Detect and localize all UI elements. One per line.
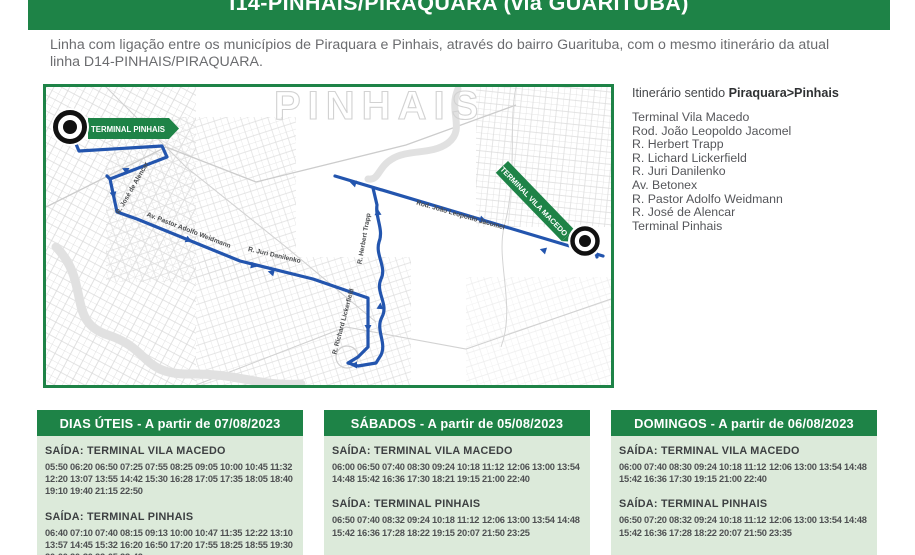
departure-time: 22:50: [120, 485, 145, 497]
departure-time: 14:45: [70, 539, 95, 551]
route-description: Linha com ligação entre os municípios de…: [50, 37, 862, 71]
itinerary-stop: R. José de Alencar: [632, 206, 892, 220]
departure-time: 14:48: [844, 514, 869, 526]
itinerary-title: Itinerário sentido Piraquara>Pinhais: [632, 86, 892, 100]
departure-time: 12:06: [482, 514, 507, 526]
street-label-herbert-trapp: R. Herbert Trapp: [357, 213, 373, 265]
departure-time: 13:54: [557, 461, 582, 473]
departure-time: 15:42: [619, 527, 644, 539]
departure-terminal-label: SAÍDA: TERMINAL PINHAIS: [45, 511, 295, 523]
departure-time: 18:22: [694, 527, 719, 539]
departure-time: 13:10: [270, 527, 295, 539]
terminal-pinhais-marker: [51, 108, 89, 146]
departure-time: 21:00: [482, 473, 507, 485]
departure-time: 16:50: [145, 539, 170, 551]
departure-time: 13:55: [95, 473, 120, 485]
departure-terminal-label: SAÍDA: TERMINAL VILA MACEDO: [332, 445, 582, 457]
schedule-header: DOMINGOS - A partir de 06/08/2023: [611, 410, 877, 436]
departure-time: 17:55: [195, 539, 220, 551]
departure-time: 14:48: [557, 514, 582, 526]
departure-time: 13:00: [532, 461, 557, 473]
terminal-vila-macedo-marker: [568, 224, 602, 258]
departure-time: 06:00: [332, 461, 357, 473]
departure-times: 06:5007:4008:3209:2410:1811:1212:0613:00…: [332, 514, 582, 538]
itinerary-panel: Itinerário sentido Piraquara>Pinhais Ter…: [632, 86, 892, 233]
itinerary-stop: Rod. João Leopoldo Jacomel: [632, 125, 892, 139]
departure-time: 16:28: [170, 473, 195, 485]
departure-time: 12:06: [769, 514, 794, 526]
departure-time: 08:32: [382, 514, 407, 526]
departure-time: 10:00: [170, 527, 195, 539]
departure-times: 06:4007:1007:4008:1509:1310:0010:4711:35…: [45, 527, 295, 555]
departure-times: 06:0006:5007:4008:3009:2410:1811:1212:06…: [332, 461, 582, 485]
departure-time: 17:28: [382, 527, 407, 539]
departure-time: 07:40: [357, 514, 382, 526]
terminal-pinhais-label: TERMINAL PINHAIS: [91, 125, 165, 134]
departure-time: 13:54: [819, 514, 844, 526]
departure-time: 07:20: [644, 514, 669, 526]
departure-time: 10:47: [195, 527, 220, 539]
departure-time: 14:48: [332, 473, 357, 485]
departure-time: 08:25: [170, 461, 195, 473]
departure-time: 15:42: [357, 473, 382, 485]
departure-time: 14:42: [120, 473, 145, 485]
departure-time: 12:06: [769, 461, 794, 473]
schedule-header: SÁBADOS - A partir de 05/08/2023: [324, 410, 590, 436]
map-watermark: PINHAIS: [274, 87, 485, 128]
departure-time: 11:12: [482, 461, 507, 473]
schedule-body: SAÍDA: TERMINAL VILA MACEDO06:0007:4008:…: [611, 436, 877, 555]
route-map: PINHAIS: [43, 84, 614, 388]
departure-time: 13:07: [70, 473, 95, 485]
departure-time: 09:24: [694, 514, 719, 526]
itinerary-stop: R. Herbert Trapp: [632, 138, 892, 152]
departure-time: 16:36: [644, 473, 669, 485]
departure-time: 20:30: [70, 551, 95, 555]
departure-time: 07:10: [70, 527, 95, 539]
departure-time: 19:10: [45, 485, 70, 497]
departure-time: 06:00: [619, 461, 644, 473]
departure-time: 12:20: [45, 473, 70, 485]
itinerary-stop-list: Terminal Vila MacedoRod. João Leopoldo J…: [632, 111, 892, 233]
departure-time: 19:15: [432, 527, 457, 539]
itinerary-stop: Terminal Pinhais: [632, 220, 892, 234]
departure-time: 10:18: [719, 514, 744, 526]
itinerary-stop: R. Lichard Lickerfield: [632, 152, 892, 166]
departure-time: 18:40: [270, 473, 295, 485]
departure-time: 19:15: [457, 473, 482, 485]
departure-time: 15:42: [619, 473, 644, 485]
itinerary-stop: Terminal Vila Macedo: [632, 111, 892, 125]
departure-time: 13:00: [794, 461, 819, 473]
schedule-table: DIAS ÚTEIS - A partir de 07/08/2023 SAÍD…: [37, 410, 303, 555]
departure-time: 13:00: [794, 514, 819, 526]
departure-time: 23:42: [120, 551, 145, 555]
departure-time: 10:18: [719, 461, 744, 473]
departure-time: 14:48: [844, 461, 869, 473]
departure-time: 19:30: [270, 539, 295, 551]
departure-time: 19:15: [694, 473, 719, 485]
departure-time: 23:25: [507, 527, 532, 539]
departure-time: 11:12: [744, 461, 769, 473]
departure-time: 13:54: [532, 514, 557, 526]
departure-time: 21:50: [482, 527, 507, 539]
departure-time: 11:35: [220, 527, 245, 539]
departure-time: 11:32: [270, 461, 295, 473]
departure-time: 12:06: [507, 461, 532, 473]
departure-time: 06:20: [70, 461, 95, 473]
departure-time: 13:00: [507, 514, 532, 526]
departure-terminal-label: SAÍDA: TERMINAL PINHAIS: [619, 498, 869, 510]
departure-time: 17:20: [170, 539, 195, 551]
itinerary-stop: Av. Betonex: [632, 179, 892, 193]
departure-time: 13:54: [819, 461, 844, 473]
itinerary-stop: R. Pastor Adolfo Weidmann: [632, 193, 892, 207]
departure-time: 18:05: [245, 473, 270, 485]
itinerary-title-regular: Itinerário sentido: [632, 86, 729, 100]
departure-time: 08:30: [669, 461, 694, 473]
departure-time: 18:21: [432, 473, 457, 485]
departure-time: 16:36: [357, 527, 382, 539]
departure-times: 06:0007:4008:3009:2410:1811:1212:0613:00…: [619, 461, 869, 485]
departure-time: 15:32: [95, 539, 120, 551]
departure-terminal-label: SAÍDA: TERMINAL VILA MACEDO: [45, 445, 295, 457]
departure-time: 17:30: [669, 473, 694, 485]
departure-time: 12:22: [245, 527, 270, 539]
departure-time: 11:12: [457, 514, 482, 526]
terminal-pinhais-ribbon: TERMINAL PINHAIS: [88, 118, 179, 139]
departure-time: 21:50: [744, 527, 769, 539]
schedule-header: DIAS ÚTEIS - A partir de 07/08/2023: [37, 410, 303, 436]
departure-time: 16:36: [382, 473, 407, 485]
schedule-body: SAÍDA: TERMINAL VILA MACEDO06:0006:5007:…: [324, 436, 590, 555]
departure-time: 09:13: [145, 527, 170, 539]
departure-time: 09:24: [694, 461, 719, 473]
departure-time: 06:50: [619, 514, 644, 526]
departure-time: 08:30: [407, 461, 432, 473]
departure-time: 07:25: [120, 461, 145, 473]
departure-time: 21:00: [719, 473, 744, 485]
departure-time: 06:50: [357, 461, 382, 473]
departure-time: 08:32: [669, 514, 694, 526]
itinerary-stop: R. Juri Danilenko: [632, 165, 892, 179]
departure-time: 17:28: [669, 527, 694, 539]
departure-time: 05:50: [45, 461, 70, 473]
departure-time: 09:24: [407, 514, 432, 526]
departure-time: 17:05: [195, 473, 220, 485]
departure-time: 17:35: [220, 473, 245, 485]
departure-time: 16:36: [644, 527, 669, 539]
departure-time: 06:50: [332, 514, 357, 526]
departure-time: 11:12: [744, 514, 769, 526]
departure-time: 09:05: [195, 461, 220, 473]
departure-time: 09:24: [432, 461, 457, 473]
page: I14-PINHAIS/PIRAQUARA (via GUARITUBA) Li…: [0, 0, 915, 555]
departure-time: 19:40: [70, 485, 95, 497]
departure-time: 07:55: [145, 461, 170, 473]
departure-time: 10:45: [245, 461, 270, 473]
departure-time: 13:57: [45, 539, 70, 551]
departure-time: 10:18: [457, 461, 482, 473]
departure-time: 15:42: [332, 527, 357, 539]
departure-time: 20:07: [457, 527, 482, 539]
map-canvas: PINHAIS: [46, 87, 611, 385]
departure-time: 20:07: [719, 527, 744, 539]
departure-time: 15:30: [145, 473, 170, 485]
departure-times: 06:5007:2008:3209:2410:1811:1212:0613:00…: [619, 514, 869, 538]
departure-time: 21:15: [95, 485, 120, 497]
schedule-body: SAÍDA: TERMINAL VILA MACEDO05:5006:2006:…: [37, 436, 303, 555]
departure-time: 18:22: [407, 527, 432, 539]
departure-time: 22:40: [507, 473, 532, 485]
departure-time: 22:05: [95, 551, 120, 555]
departure-time: 10:00: [220, 461, 245, 473]
departure-time: 10:18: [432, 514, 457, 526]
departure-time: 07:40: [644, 461, 669, 473]
departure-time: 18:55: [245, 539, 270, 551]
departure-time: 18:25: [220, 539, 245, 551]
departure-time: 06:40: [45, 527, 70, 539]
departure-times: 05:5006:2006:5007:2507:5508:2509:0510:00…: [45, 461, 295, 498]
departure-time: 16:20: [120, 539, 145, 551]
page-title: I14-PINHAIS/PIRAQUARA (via GUARITUBA): [229, 0, 689, 30]
itinerary-title-direction: Piraquara>Pinhais: [729, 86, 839, 100]
schedule-table: SÁBADOS - A partir de 05/08/2023 SAÍDA: …: [324, 410, 590, 555]
departure-time: 23:35: [769, 527, 794, 539]
departure-time: 07:40: [382, 461, 407, 473]
departure-time: 07:40: [95, 527, 120, 539]
header-bar: I14-PINHAIS/PIRAQUARA (via GUARITUBA): [28, 0, 890, 30]
departure-time: 08:15: [120, 527, 145, 539]
departure-time: 06:50: [95, 461, 120, 473]
departure-time: 17:30: [407, 473, 432, 485]
departure-time: 20:00: [45, 551, 70, 555]
departure-time: 22:40: [744, 473, 769, 485]
departure-terminal-label: SAÍDA: TERMINAL VILA MACEDO: [619, 445, 869, 457]
schedule-table: DOMINGOS - A partir de 06/08/2023 SAÍDA:…: [611, 410, 877, 555]
departure-terminal-label: SAÍDA: TERMINAL PINHAIS: [332, 498, 582, 510]
